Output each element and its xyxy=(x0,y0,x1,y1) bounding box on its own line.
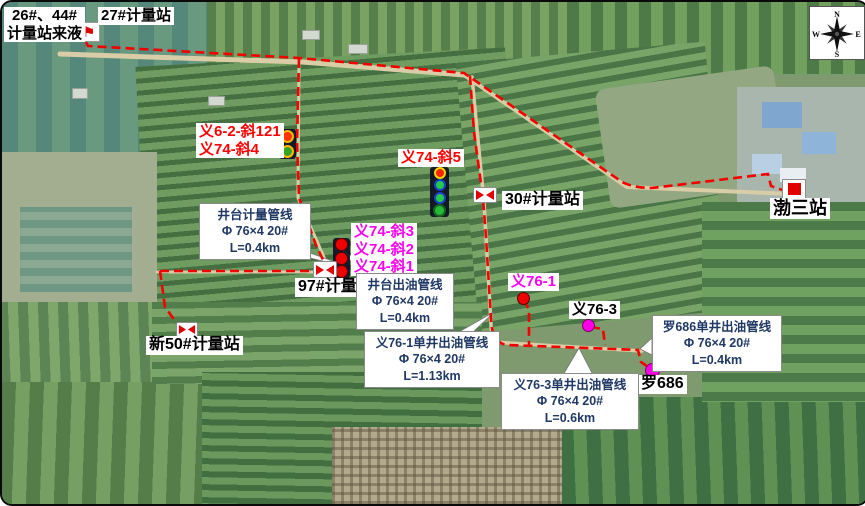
compass-w: W xyxy=(812,30,820,39)
valve-bowtie-icon xyxy=(315,264,335,276)
well-luo686-label: 罗686 xyxy=(638,375,687,394)
well-y74-2-label: 义74-斜2 xyxy=(354,241,414,259)
wellpad-y62-label: 义6-2-斜121 义74-斜4 xyxy=(196,123,284,158)
feed-source-line1: 26#、44# xyxy=(7,7,82,25)
station-30-valve-icon xyxy=(473,187,497,203)
callout-y76-1-line3: L=1.13km xyxy=(370,368,494,384)
compass-e: E xyxy=(855,30,860,39)
oilfield-pipeline-map: N E S W 26#、44# 计量站来液 27#计量站 ⚑ 义6-2-斜121… xyxy=(0,0,865,506)
well-dot-red-yellow xyxy=(434,167,446,179)
station-bosan-label: 渤三站 xyxy=(770,198,830,219)
well-y74-4-label: 义74-斜4 xyxy=(199,141,281,159)
compass-s: S xyxy=(835,50,840,59)
callout-y76-3-line3: L=0.6km xyxy=(507,410,633,426)
wellpad-y74-5-dots xyxy=(430,167,449,217)
compass-rose-icon: N E S W xyxy=(810,7,864,59)
well-y76-3-label: 义76-3 xyxy=(569,301,620,319)
callout-y76-1-line1: 义76-1单井出油管线 xyxy=(370,335,494,351)
callout-pad-outflow-line1: 井台出油管线 xyxy=(362,277,448,293)
station-50-label: 新50#计量站 xyxy=(146,336,243,355)
valve-bowtie-icon xyxy=(178,324,196,335)
well-y76-1-dot xyxy=(517,292,530,305)
well-dot-green-blue xyxy=(434,192,446,204)
callout-pad-metering-line2: Φ 76×4 20# xyxy=(205,223,305,239)
well-dot-green-blue xyxy=(434,179,446,191)
compass-n: N xyxy=(834,10,840,19)
callout-y76-3-line1: 义76-3单井出油管线 xyxy=(507,377,633,393)
feed-source-line2: 计量站来液 xyxy=(7,25,82,43)
callout-y76-1-line: 义76-1单井出油管线 Φ 76×4 20# L=1.13km xyxy=(364,331,500,388)
well-y76-1-label: 义76-1 xyxy=(508,273,559,291)
station-bosan-icon xyxy=(782,179,806,199)
well-y74-3-label: 义74-斜3 xyxy=(354,223,414,241)
callout-pad-metering-line1: 井台计量管线 xyxy=(205,207,305,223)
station-97-valve-icon xyxy=(313,261,337,278)
callout-y76-3-line: 义76-3单井出油管线 Φ 76×4 20# L=0.6km xyxy=(501,373,639,430)
callout-luo686-line1: 罗686单井出油管线 xyxy=(658,319,776,335)
well-y76-3-dot xyxy=(582,319,595,332)
callout-y76-1-line2: Φ 76×4 20# xyxy=(370,351,494,367)
callout-luo686-line: 罗686单井出油管线 Φ 76×4 20# L=0.4km xyxy=(652,315,782,372)
well-dot-red xyxy=(335,238,348,251)
feed-source-label: 26#、44# 计量站来液 xyxy=(4,7,85,42)
well-dot-green xyxy=(433,204,446,217)
red-square-icon xyxy=(788,183,801,195)
callout-luo686-line2: Φ 76×4 20# xyxy=(658,335,776,351)
callout-pad-metering-line3: L=0.4km xyxy=(205,240,305,256)
valve-bowtie-icon xyxy=(475,189,495,201)
pipeline-network-overlay xyxy=(2,2,865,504)
well-y74-5-label: 义74-斜5 xyxy=(398,149,464,167)
wellpad-y74-labels: 义74-斜3 义74-斜2 义74-斜1 xyxy=(351,223,417,276)
station-50-valve-icon xyxy=(176,322,198,337)
callout-pad-outflow-line2: Φ 76×4 20# xyxy=(362,293,448,309)
compass-rose: N E S W xyxy=(809,6,865,60)
callout-pad-outflow-line3: L=0.4km xyxy=(362,310,448,326)
callout-luo686-line3: L=0.4km xyxy=(658,352,776,368)
callout-pad-outflow: 井台出油管线 Φ 76×4 20# L=0.4km xyxy=(356,273,454,330)
station-30-label: 30#计量站 xyxy=(502,191,583,210)
callout-y76-3-line2: Φ 76×4 20# xyxy=(507,393,633,409)
station-27-label: 27#计量站 xyxy=(98,7,174,25)
well-y62-121-label: 义6-2-斜121 xyxy=(199,123,281,141)
callout-pad-metering: 井台计量管线 Φ 76×4 20# L=0.4km xyxy=(199,203,311,260)
